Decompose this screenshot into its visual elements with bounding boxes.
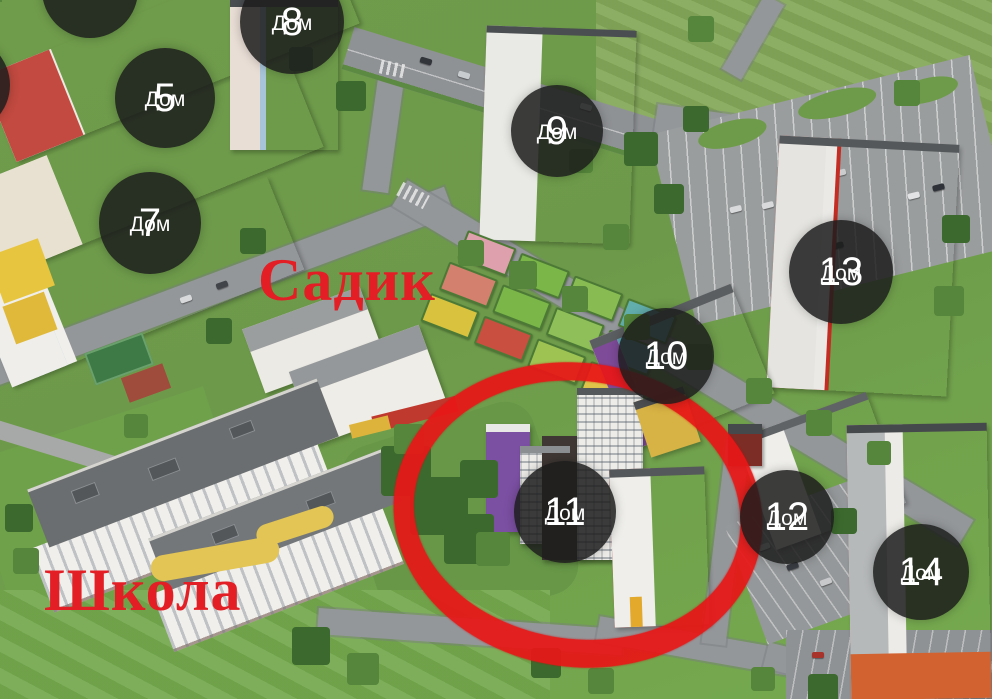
house-badge-10[interactable]: 10Дом [618,308,714,404]
badge-label: Дом [545,503,586,524]
site-plan-image: Садик Школа 5Дом7Дом8Дом9Дом10Дом11Дом12… [0,0,992,699]
house-badge-11[interactable]: 11Дом [514,461,616,563]
green-island [893,71,961,110]
roof-vent [71,482,100,504]
car [812,652,824,658]
tree-cluster [0,0,2,2]
house-badge-12[interactable]: 12Дом [740,470,834,564]
car [819,577,832,587]
orange-base [851,652,992,699]
badge-label: Дом [272,13,313,34]
badge-label: Дом [130,214,171,235]
badge-label: Дом [767,508,808,529]
roof [847,423,987,433]
roof [728,424,762,434]
house-badge-14[interactable]: 14Дом [873,524,969,620]
house-badge-5[interactable]: 5Дом [115,48,215,148]
badge-label: Дом [821,263,862,284]
house-badge-13[interactable]: 13Дом [789,220,893,324]
roof-vent [229,420,256,440]
school-label: Школа [44,560,242,620]
roof-vent [147,457,180,481]
house-badge-7[interactable]: 7Дом [99,172,201,274]
badge-label: Дом [901,563,942,584]
badge-label: Дом [646,347,687,368]
badge-label: Дом [145,89,186,110]
car [729,205,742,214]
badge-label: Дом [537,122,578,143]
kindergarten-label: Садик [258,250,436,310]
house-badge-9[interactable]: 9Дом [511,85,603,177]
car [761,201,774,210]
